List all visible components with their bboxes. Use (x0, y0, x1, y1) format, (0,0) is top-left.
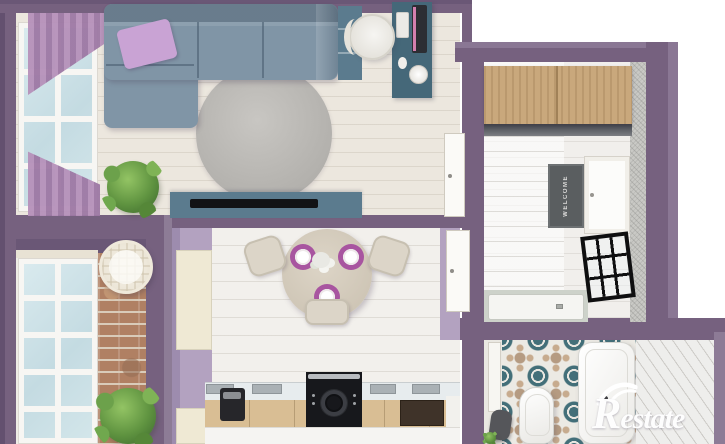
oven-knob (353, 402, 356, 405)
window-panes (24, 264, 92, 438)
door-handle (450, 269, 454, 273)
monitor (412, 5, 427, 53)
sofa-seam (106, 64, 194, 66)
sofa-armrest (316, 4, 338, 80)
keyboard (396, 12, 409, 38)
counter-tray (370, 384, 396, 394)
kitchen-tall-cabinet (176, 250, 212, 350)
oven-handle (308, 374, 360, 379)
wall-middle-vertical (462, 13, 484, 444)
counter-tray (412, 384, 440, 394)
sofa-seam (197, 22, 199, 78)
oven-dial (321, 390, 347, 416)
living-room-plant (107, 161, 159, 213)
oven-knob (312, 402, 315, 405)
kitchen-appliance-panel (400, 400, 444, 426)
round-rug (196, 66, 332, 202)
exterior-cutout-right (678, 0, 725, 318)
counter-tray (252, 384, 282, 394)
place-setting (338, 244, 364, 270)
wicker-chair (99, 240, 153, 294)
shower-screen (580, 231, 636, 302)
watermark-text: Restate (592, 392, 725, 436)
doormat: WELCOME (548, 164, 584, 228)
coffee-maker (220, 388, 245, 421)
shower-drain (556, 304, 563, 309)
door-handle (448, 174, 452, 178)
oven-knob (312, 394, 315, 397)
tv (190, 199, 318, 208)
front-door (584, 156, 630, 234)
desk-lamp (409, 65, 428, 84)
sofa-seam (262, 22, 264, 78)
door-handle (590, 193, 594, 197)
bathroom-door (488, 342, 501, 412)
dining-chair (305, 299, 349, 325)
wall-hall-right (646, 42, 678, 322)
mouse (398, 57, 407, 69)
balcony-window (18, 258, 98, 444)
balcony-plant (100, 388, 156, 444)
flower-centerpiece (312, 252, 330, 268)
wall-left (0, 0, 16, 444)
window-mullion-vertical (55, 264, 61, 438)
kitchen-island-edge (205, 427, 460, 444)
doormat-text: WELCOME (563, 175, 569, 217)
desk-chair (349, 14, 395, 60)
floor-plan-scene: WELCOME Restate (0, 0, 725, 444)
shower-tray (488, 294, 584, 320)
plate (343, 249, 359, 265)
watermark: Restate (588, 380, 725, 444)
toilet (519, 387, 554, 444)
wardrobe-shadow (484, 124, 632, 136)
balcony-ledge (16, 250, 98, 258)
oven-knob (353, 394, 356, 397)
wall-hall-top (455, 42, 666, 62)
kitchen-door (446, 230, 470, 312)
nook-door (444, 133, 465, 217)
plate (295, 249, 311, 265)
wardrobe (484, 66, 632, 124)
bathroom-plant-sprig (484, 432, 496, 444)
